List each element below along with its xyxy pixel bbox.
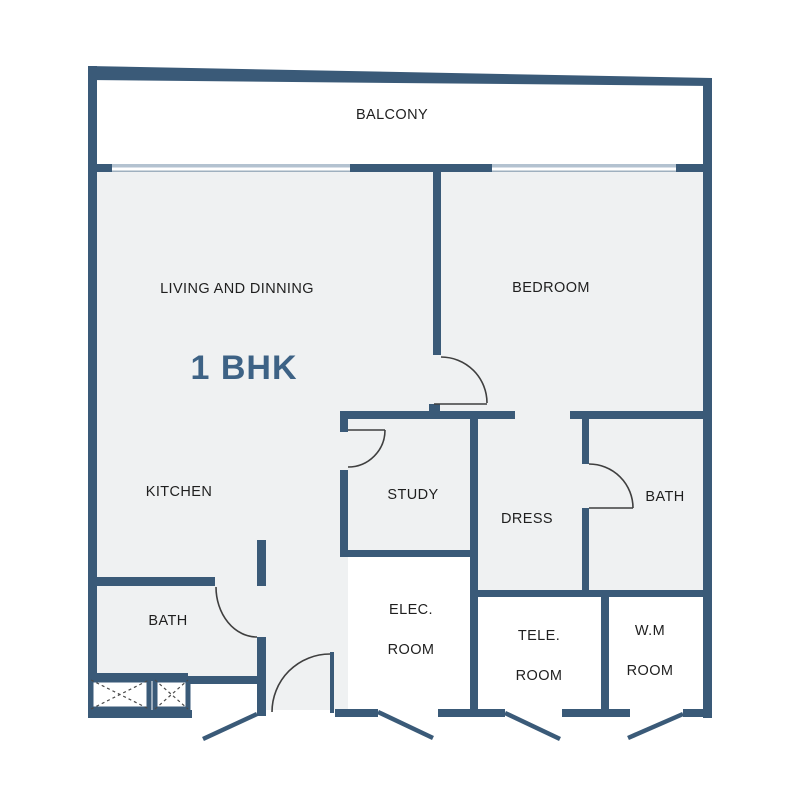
wall-study-dress-divider [470,419,478,715]
wall-living-bedroom [433,172,441,355]
room-label-elec-room: ELEC. ROOM [388,590,435,670]
plan-title: 1 BHK [190,351,297,385]
wall-study-bottom [340,550,477,557]
wall-study-west-b [340,470,348,557]
wall-right [703,78,712,718]
wall-top-sloped [88,66,712,86]
wall-tele-wm-divider [601,597,609,715]
balcony-wall [97,164,703,172]
wall-hall-west [340,411,515,419]
wall-tele-wm-top [470,590,703,597]
leaf-wm-door [628,714,683,738]
room-label-tele-line1: TELE. [516,616,563,656]
room-label-tele-room: TELE. ROOM [516,616,563,696]
wall-left [88,66,97,718]
room-label-living: LIVING AND DINNING [160,269,314,309]
room-label-bedroom: BEDROOM [512,268,590,308]
shaft-boxes [91,680,188,709]
window-strip-bedroom [492,164,676,172]
main-door-leaf [330,652,334,713]
room-label-dress: DRESS [501,499,553,539]
room-label-kitchen: KITCHEN [146,472,212,512]
wall-bath-left-bottom-b [188,676,257,684]
wall-hall-east [570,411,703,419]
wall-hinge-stub [429,404,440,412]
room-label-bath-left: BATH [148,601,187,641]
wall-kitchen-bottom [88,577,215,586]
wall-dress-bath-b [582,508,589,597]
room-label-wm-line1: W.M [627,611,674,651]
leaf-elec-door [378,712,433,738]
room-label-study: STUDY [387,475,438,515]
room-label-bath-right: BATH [645,477,684,517]
floor-plan: BALCONY LIVING AND DINNING 1 BHK BEDROOM… [0,0,800,800]
room-label-elec-line1: ELEC. [388,590,435,630]
room-label-wm-room: W.M ROOM [627,611,674,691]
room-label-balcony: BALCONY [356,95,428,135]
room-label-wm-line2: ROOM [627,651,674,691]
leaf-tele-door [505,713,560,739]
wall-kitchen-stub [257,540,266,586]
room-label-tele-line2: ROOM [516,656,563,696]
leaf-entrance-out [203,714,257,739]
wall-study-west-a [340,419,348,432]
wall-dress-bath-a [582,419,589,464]
room-label-elec-line2: ROOM [388,630,435,670]
window-strip-living [112,164,350,172]
wall-corridor-west [257,637,266,716]
